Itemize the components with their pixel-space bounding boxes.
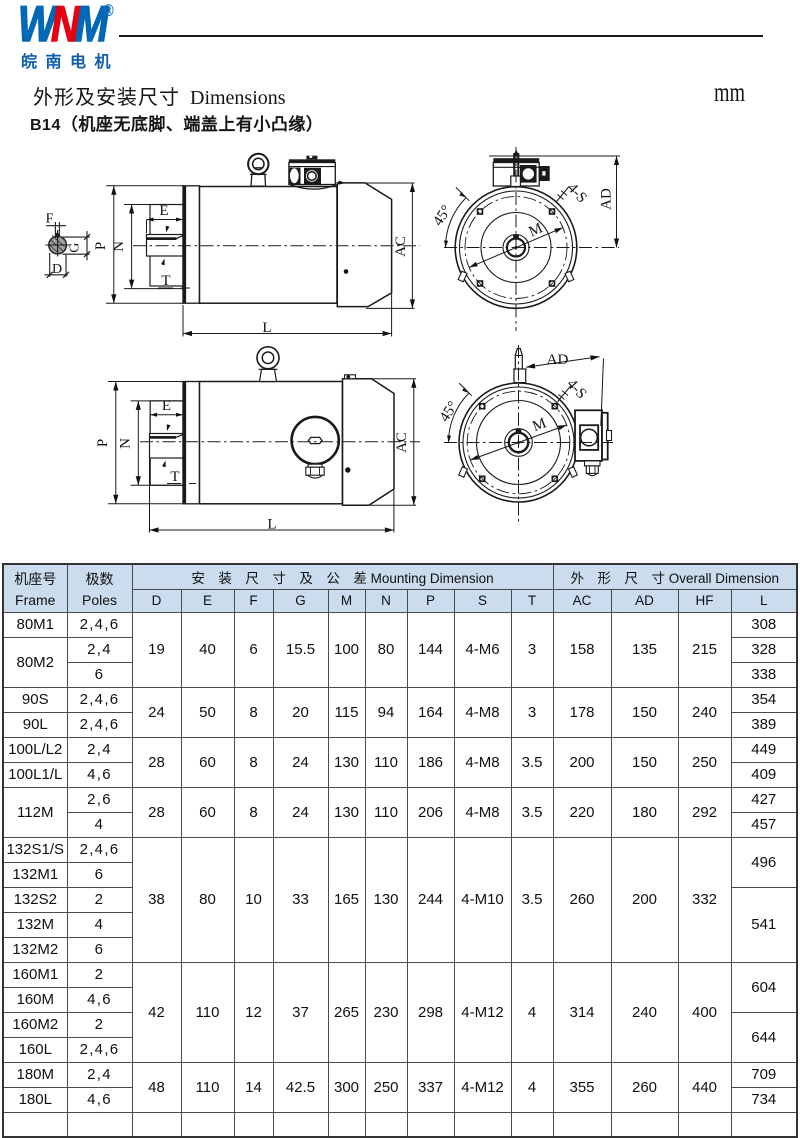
svg-text:AD: AD bbox=[599, 188, 615, 210]
svg-text:45°: 45° bbox=[430, 203, 455, 229]
svg-text:AC: AC bbox=[393, 236, 409, 257]
svg-text:AC: AC bbox=[394, 432, 410, 453]
svg-text:L: L bbox=[267, 517, 276, 533]
svg-text:N: N bbox=[111, 241, 127, 252]
svg-text:4-S: 4-S bbox=[564, 180, 590, 206]
svg-text:T: T bbox=[170, 469, 179, 485]
svg-text:N: N bbox=[118, 438, 134, 449]
svg-text:P: P bbox=[93, 242, 109, 250]
svg-text:P: P bbox=[95, 439, 111, 447]
svg-text:45°: 45° bbox=[437, 399, 462, 425]
svg-text:L: L bbox=[262, 320, 271, 336]
svg-text:E: E bbox=[162, 398, 171, 414]
svg-text:T: T bbox=[161, 273, 170, 289]
svg-text:F: F bbox=[46, 212, 54, 227]
svg-text:G: G bbox=[67, 243, 82, 253]
svg-text:AD: AD bbox=[547, 352, 569, 368]
svg-text:4-S: 4-S bbox=[563, 376, 589, 402]
svg-text:D: D bbox=[52, 262, 62, 277]
svg-text:E: E bbox=[159, 203, 168, 219]
